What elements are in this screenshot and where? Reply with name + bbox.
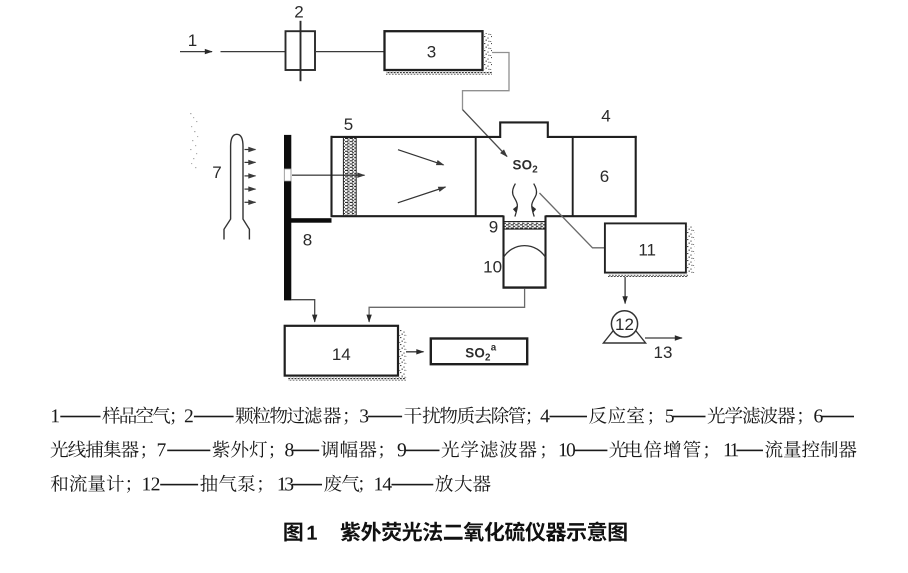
svg-text:6: 6: [600, 167, 609, 186]
svg-text:12: 12: [615, 315, 634, 334]
svg-text:9: 9: [489, 218, 498, 237]
svg-text:5: 5: [344, 115, 353, 134]
svg-text:10: 10: [483, 258, 502, 277]
svg-text:3: 3: [427, 43, 436, 62]
svg-text:2: 2: [294, 3, 303, 22]
svg-text:7: 7: [212, 163, 221, 182]
svg-text:4: 4: [601, 107, 610, 126]
svg-text:1: 1: [188, 31, 197, 50]
svg-text:14: 14: [332, 345, 351, 364]
svg-text:13: 13: [654, 343, 673, 362]
svg-text:11: 11: [638, 241, 656, 260]
svg-text:8: 8: [303, 231, 312, 250]
